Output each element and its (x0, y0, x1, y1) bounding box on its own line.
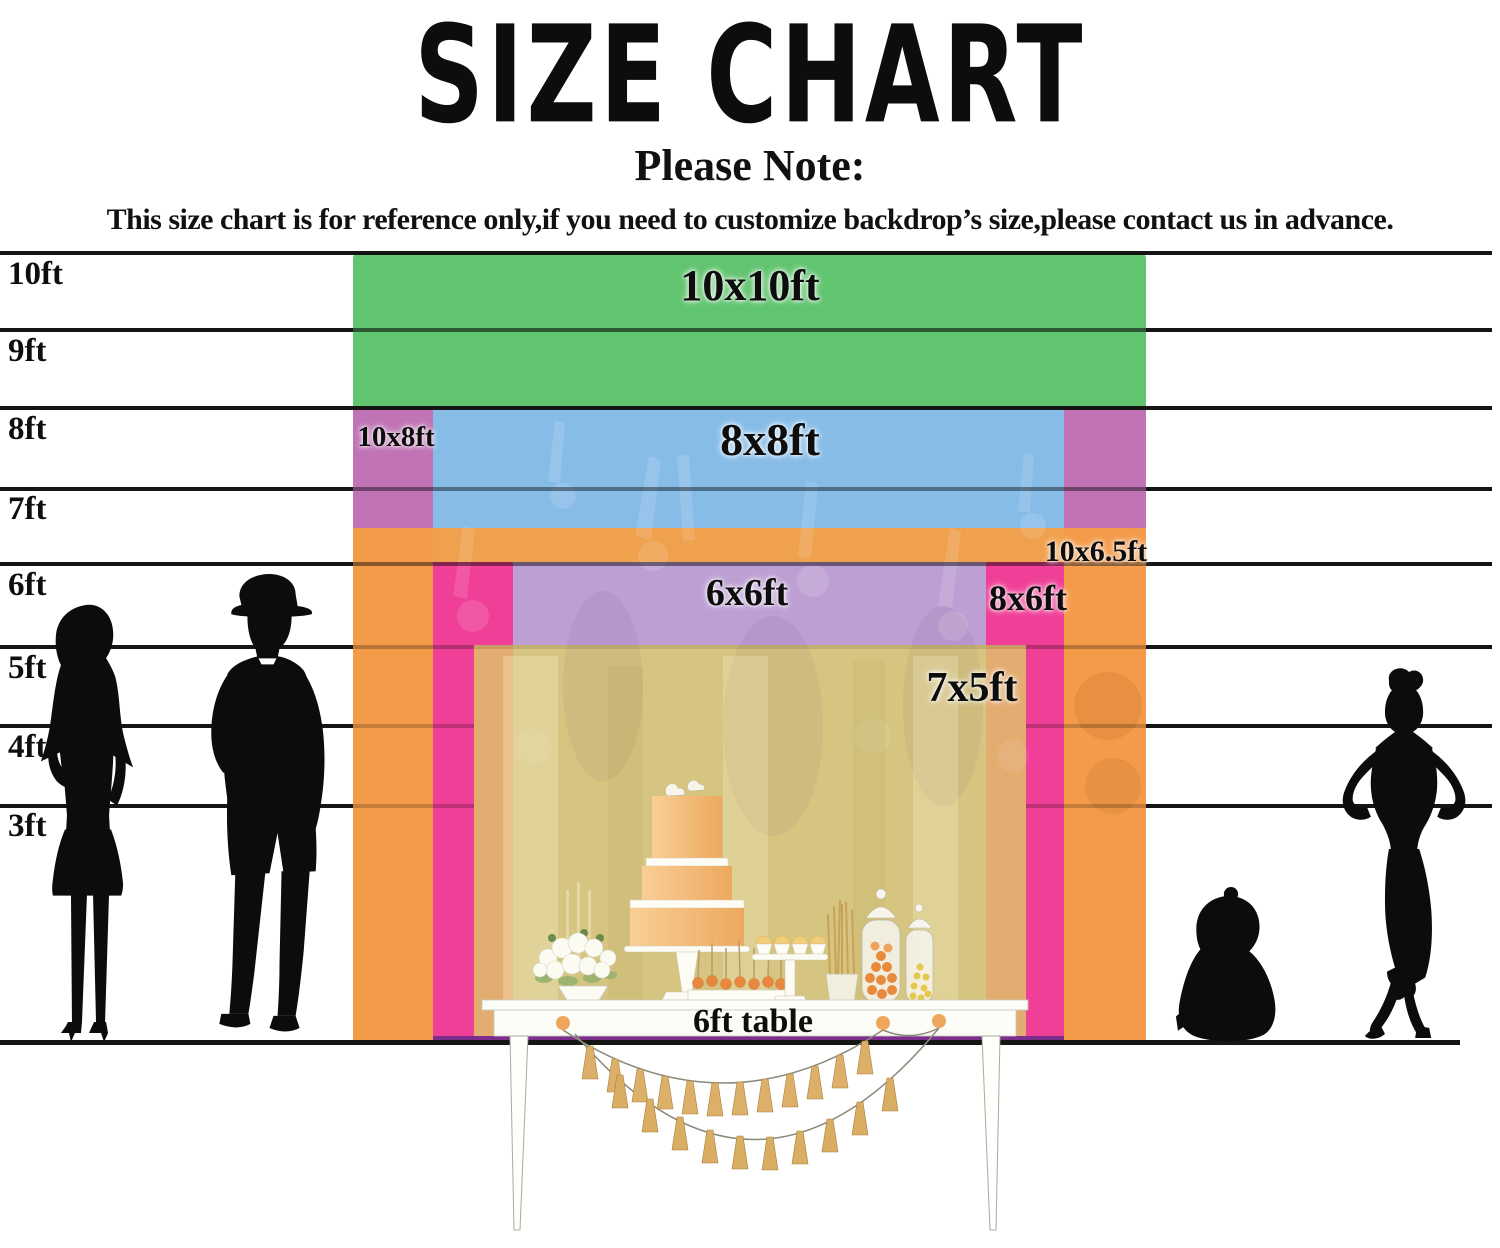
label-6x6ft: 6x6ft (706, 571, 788, 615)
ruler-line-5ft (474, 645, 1026, 649)
ruler-label-9ft: 9ft (8, 333, 46, 370)
ruler-line-9ft (353, 328, 1146, 332)
note-body: This size chart is for reference only,if… (0, 203, 1500, 237)
tiered-cake (624, 780, 750, 1000)
sitting-baby-silhouette (1164, 886, 1300, 1044)
candy-jar-yellow (906, 904, 933, 1002)
man-wearing-hat-silhouette (180, 570, 358, 1042)
posing-woman-silhouette (1318, 666, 1470, 1046)
ruler-line-10ft (0, 251, 1492, 255)
ruler-line-5ft (353, 645, 474, 649)
ruler-line-4ft (353, 724, 474, 728)
ruler-line-6ft (0, 562, 353, 566)
ruler-label-6ft: 6ft (8, 567, 46, 604)
ruler-line-5ft (1026, 645, 1146, 649)
standing-woman-silhouette (10, 601, 162, 1042)
ruler-line-3ft (1026, 804, 1146, 808)
candy-jar-orange (862, 889, 900, 1002)
stick-bundle (826, 900, 858, 1004)
ruler-label-10ft: 10ft (8, 256, 63, 293)
size-chart-infographic: 10ft 9ft 8ft 7ft 6ft 5ft 4ft 3ft 10x10ft… (0, 0, 1500, 1248)
ruler-line-6ft (1146, 562, 1492, 566)
ruler-line-8ft (0, 406, 1492, 410)
ruler-label-8ft: 8ft (8, 411, 46, 448)
page-title: SIZE CHART (135, 0, 1365, 153)
dessert-table-scene: 6ft table (480, 778, 1030, 1243)
label-10x6-5ft: 10x6.5ft (1045, 535, 1147, 569)
ruler-line-7ft (353, 487, 1146, 491)
ruler-line-7ft (1146, 487, 1492, 491)
label-8x6ft: 8x6ft (989, 577, 1067, 619)
ruler-line-7ft (0, 487, 353, 491)
ruler-line-5ft (1146, 645, 1492, 649)
label-10x10ft: 10x10ft (680, 260, 819, 311)
flower-arrangement (533, 929, 617, 1005)
note-heading: Please Note: (0, 140, 1500, 191)
ruler-line-6ft (353, 562, 1146, 566)
ruler-line-4ft (1026, 724, 1146, 728)
ruler-line-9ft (0, 328, 353, 332)
label-7x5ft: 7x5ft (927, 664, 1018, 712)
table-size-label: 6ft table (693, 1003, 813, 1040)
label-8x8ft: 8x8ft (720, 413, 820, 466)
ruler-line-3ft (353, 804, 474, 808)
ruler-line-9ft (1146, 328, 1492, 332)
table: 6ft table (482, 1000, 1028, 1230)
ruler-label-7ft: 7ft (8, 491, 46, 528)
label-10x8ft: 10x8ft (357, 421, 434, 454)
